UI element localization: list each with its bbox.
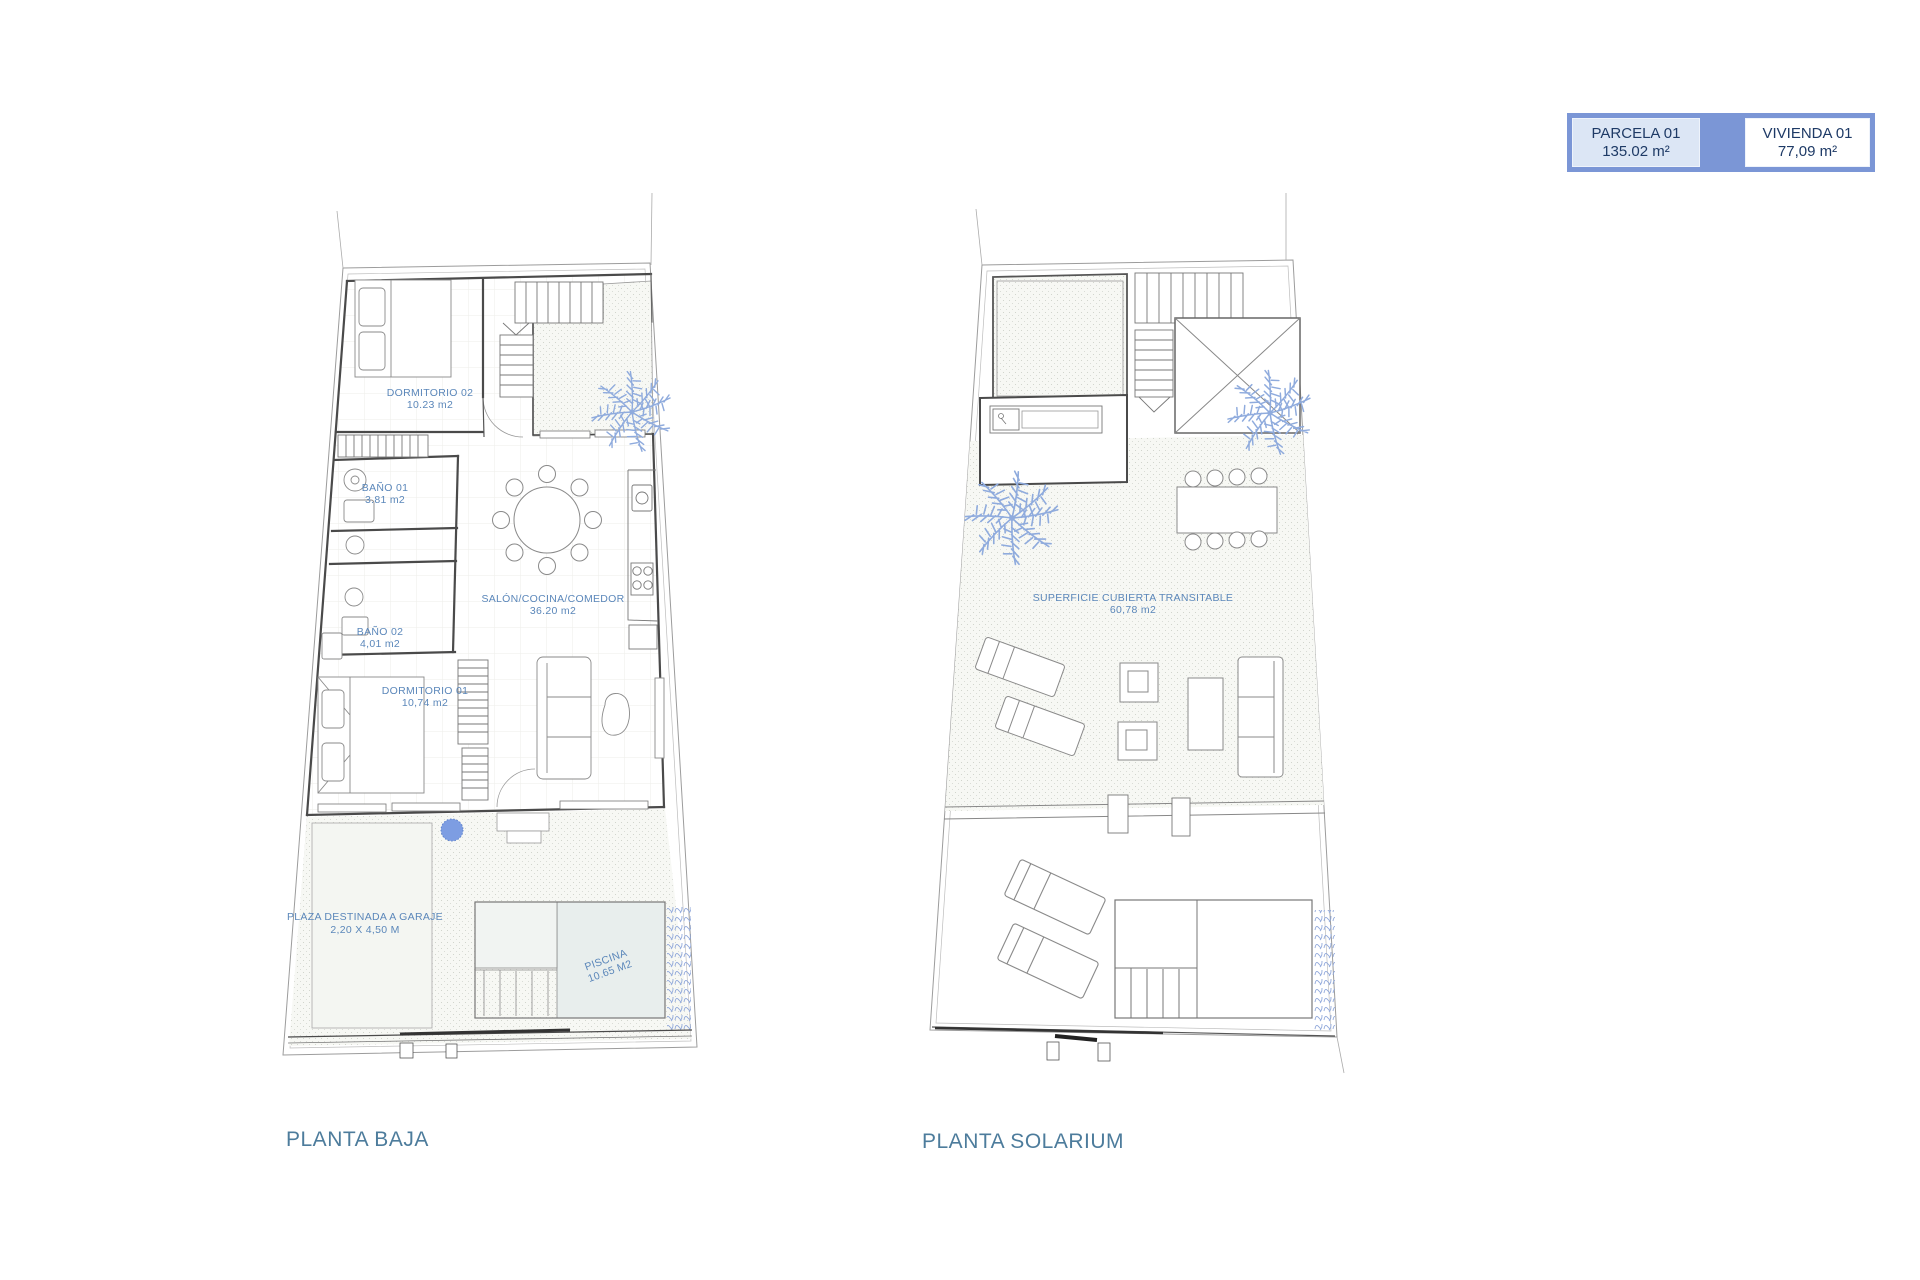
planta-solarium-title: PLANTA SOLARIUM [922, 1130, 1124, 1154]
room-area-superficie: 60,78 m2 [1110, 604, 1156, 616]
planta-solarium-drawing: SUPERFICIE CUBIERTA TRANSITABLE 60,78 m2 [900, 185, 1370, 1105]
vivienda-label: VIVIENDA 01 [1762, 125, 1852, 143]
parcela-value: 135.02 m² [1602, 143, 1670, 161]
room-label-superficie: SUPERFICIE CUBIERTA TRANSITABLE [1033, 592, 1233, 604]
pool-outline [1115, 900, 1312, 1018]
bed-dormitorio-02 [355, 280, 451, 377]
room-label-dormitorio-01: DORMITORIO 01 [382, 685, 469, 697]
vivienda-value: 77,09 m² [1778, 143, 1837, 161]
room-label-dormitorio-02: DORMITORIO 02 [387, 387, 474, 399]
dining-table [493, 466, 602, 575]
room-area-dormitorio-02: 10.23 m2 [407, 399, 453, 411]
fence [932, 1027, 1335, 1061]
room-area-bano-01: 3.81 m2 [365, 494, 405, 506]
area-legend: PARCELA 01 135.02 m² VIVIENDA 01 77,09 m… [1567, 113, 1875, 172]
room-area-garaje: 2,20 X 4,50 M [330, 924, 399, 936]
planting-strip [667, 907, 691, 1033]
room-label-garaje: PLAZA DESTINADA A GARAJE [287, 911, 443, 923]
room-area-dormitorio-01: 10,74 m2 [402, 697, 448, 709]
room-area-bano-02: 4,01 m2 [360, 638, 400, 650]
planta-baja-title: PLANTA BAJA [286, 1128, 429, 1152]
room-area-salon: 36.20 m2 [530, 605, 576, 617]
wardrobe-hangers [338, 435, 428, 457]
room-label-bano-01: BAÑO 01 [362, 481, 408, 494]
vivienda-cell: VIVIENDA 01 77,09 m² [1745, 118, 1870, 167]
planta-baja-drawing: DORMITORIO 02 10.23 m2 BAÑO 01 3.81 m2 B… [260, 185, 720, 1075]
loungers-lower [997, 859, 1106, 999]
outdoor-sofa [1238, 657, 1283, 777]
planting-strip [1314, 910, 1335, 1032]
parcela-cell: PARCELA 01 135.02 m² [1572, 118, 1700, 167]
tree-icon [441, 819, 463, 841]
bulkhead-roof [993, 274, 1127, 403]
room-label-bano-02: BAÑO 02 [357, 625, 403, 638]
summer-kitchen [980, 395, 1127, 485]
parcela-label: PARCELA 01 [1592, 125, 1681, 143]
legend-divider [1700, 118, 1745, 167]
wardrobe-ladder [458, 660, 488, 800]
plan-sheet: PARCELA 01 135.02 m² VIVIENDA 01 77,09 m… [0, 0, 1920, 1280]
room-label-salon: SALÓN/COCINA/COMEDOR [481, 592, 624, 605]
